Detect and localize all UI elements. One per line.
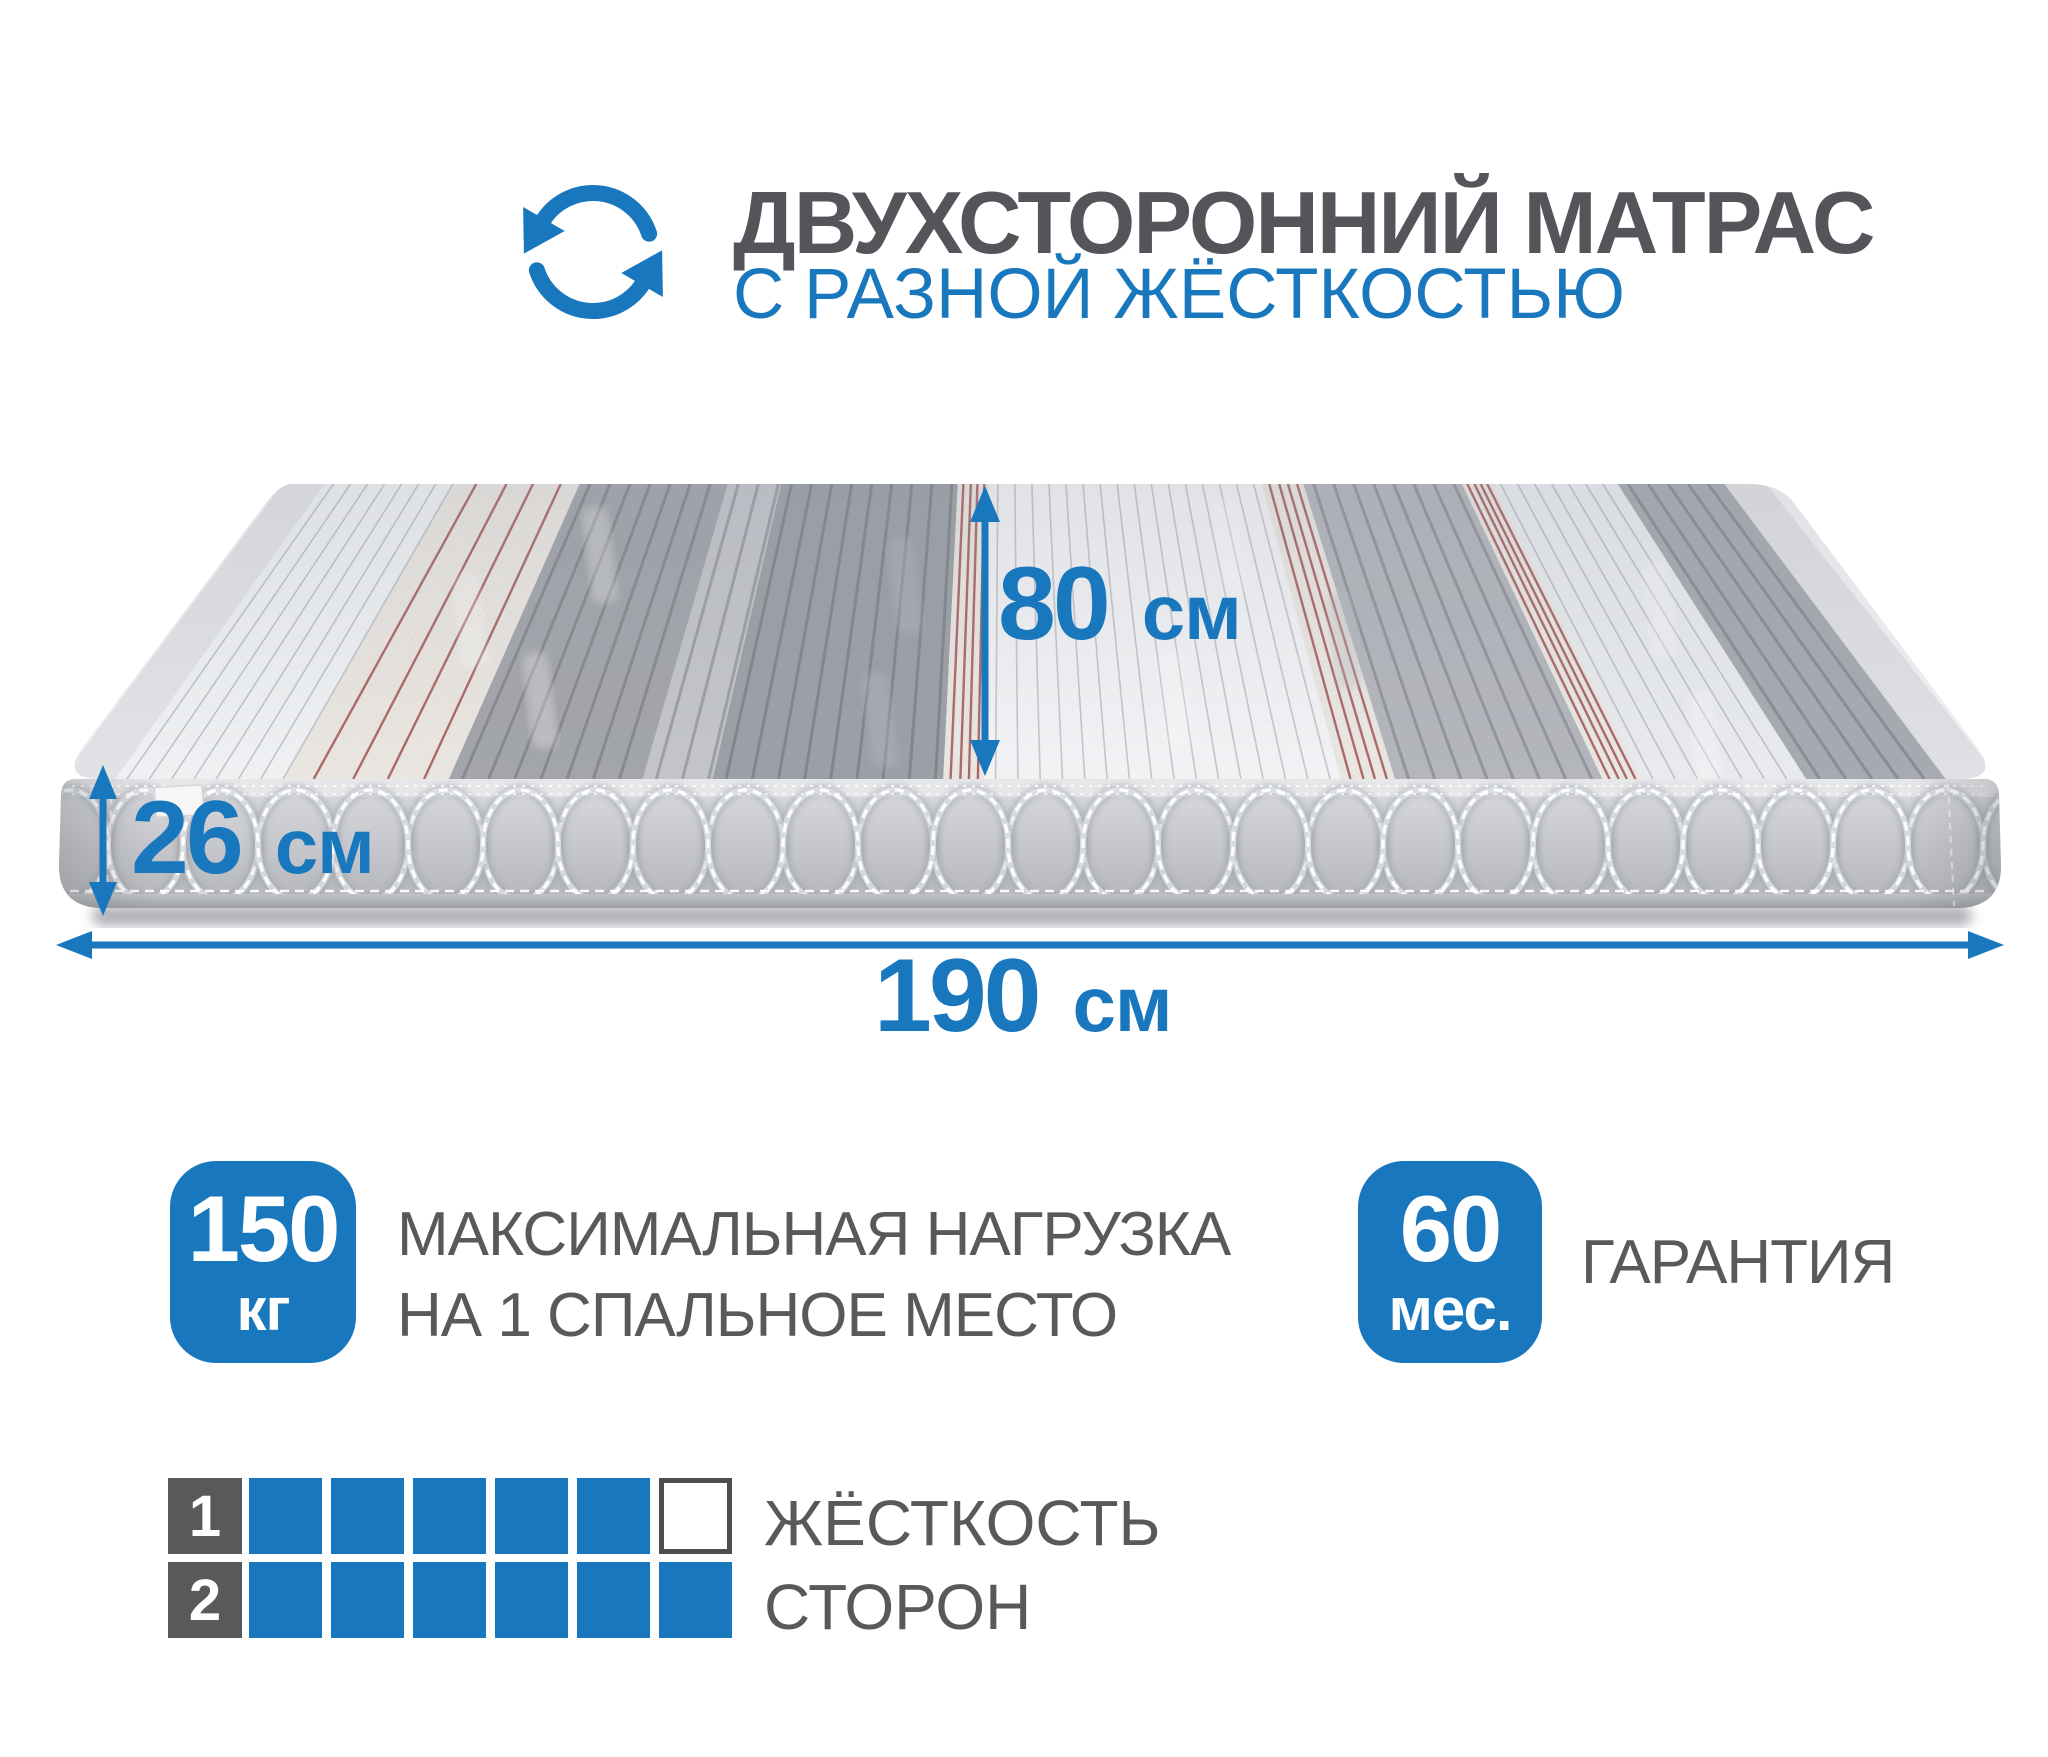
firmness-cell-filled	[577, 1478, 650, 1554]
max-load-caption-line2: НА 1 СПАЛЬНОЕ МЕСТО	[397, 1275, 1230, 1356]
width-unit: см	[1073, 965, 1172, 1043]
depth-dimension-label: 80 см	[998, 552, 1241, 656]
max-load-caption-line1: МАКСИМАЛЬНАЯ НАГРУЗКА	[397, 1194, 1230, 1275]
height-unit: см	[275, 807, 374, 885]
firmness-cell-filled	[659, 1562, 732, 1638]
mattress-infographic: ДВУХСТОРОННИЙ МАТРАС С РАЗНОЙ ЖЁСТКОСТЬЮ…	[0, 0, 2048, 1757]
warranty-caption: ГАРАНТИЯ	[1581, 1232, 1894, 1294]
firmness-row-label: 2	[168, 1562, 242, 1638]
firmness-caption-line2: СТОРОН	[764, 1570, 1031, 1644]
firmness-cell-filled	[249, 1562, 322, 1638]
firmness-cell-filled	[577, 1562, 650, 1638]
depth-value: 80	[998, 552, 1108, 656]
firmness-cell-filled	[331, 1562, 404, 1638]
depth-unit: см	[1142, 573, 1241, 651]
firmness-caption-line1: ЖЁСТКОСТЬ	[764, 1486, 1161, 1560]
page-subtitle: С РАЗНОЙ ЖЁСТКОСТЬЮ	[733, 259, 1625, 330]
max-load-unit: кг	[236, 1280, 289, 1340]
width-dimension-label: 190 см	[874, 944, 1172, 1048]
mattress-shadow	[92, 906, 1972, 926]
warranty-value: 60	[1400, 1184, 1501, 1273]
warranty-unit: мес.	[1388, 1280, 1511, 1340]
page-title: ДВУХСТОРОННИЙ МАТРАС	[733, 179, 1873, 267]
height-arrow	[89, 765, 117, 916]
max-load-value: 150	[188, 1184, 339, 1273]
firmness-cell-filled	[495, 1478, 568, 1554]
max-load-badge: 150 кг	[170, 1161, 356, 1363]
firmness-cell-filled	[249, 1478, 322, 1554]
warranty-badge: 60 мес.	[1358, 1161, 1542, 1363]
firmness-cell-filled	[413, 1478, 486, 1554]
max-load-caption: МАКСИМАЛЬНАЯ НАГРУЗКА НА 1 СПАЛЬНОЕ МЕСТ…	[397, 1194, 1230, 1356]
firmness-cell-filled	[331, 1478, 404, 1554]
width-value: 190	[874, 944, 1039, 1048]
firmness-cell-empty	[659, 1478, 732, 1554]
rotate-arrows-icon	[523, 193, 663, 311]
depth-arrow	[970, 486, 1000, 776]
firmness-cell-filled	[413, 1562, 486, 1638]
firmness-row-label: 1	[168, 1478, 242, 1554]
height-value: 26	[131, 786, 241, 890]
height-dimension-label: 26 см	[131, 786, 374, 890]
firmness-cell-filled	[495, 1562, 568, 1638]
